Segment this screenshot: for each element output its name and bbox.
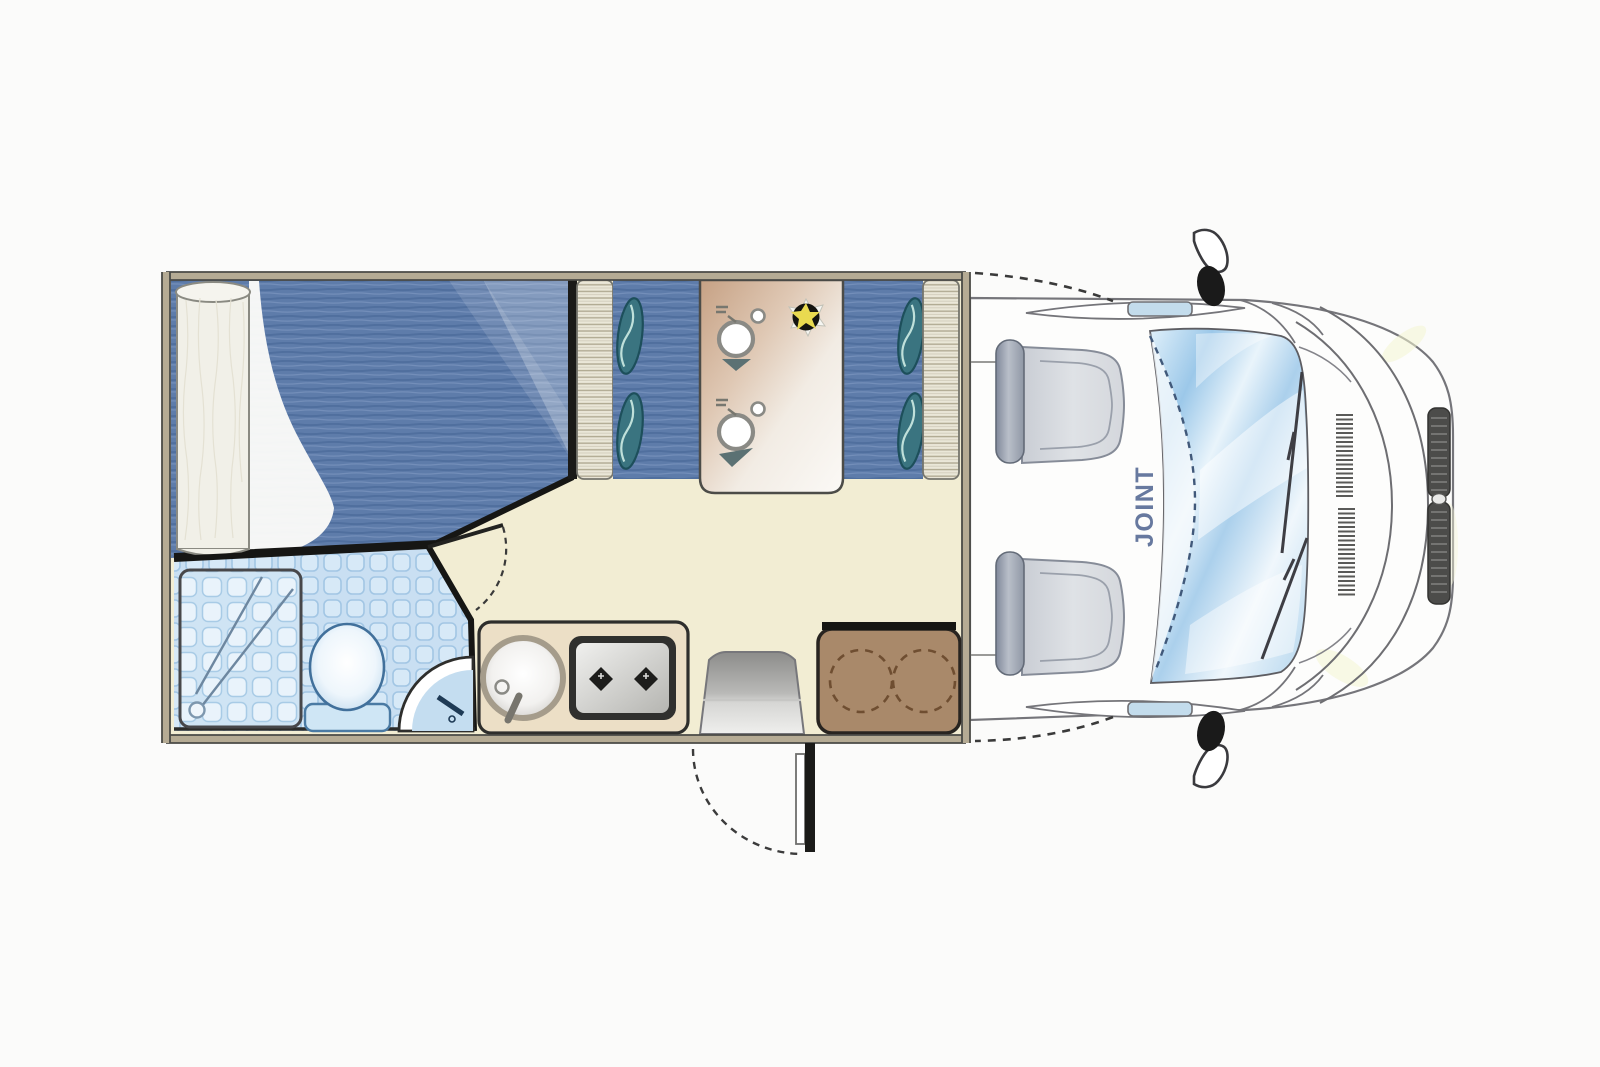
svg-text:JOINT: JOINT bbox=[1131, 466, 1159, 547]
